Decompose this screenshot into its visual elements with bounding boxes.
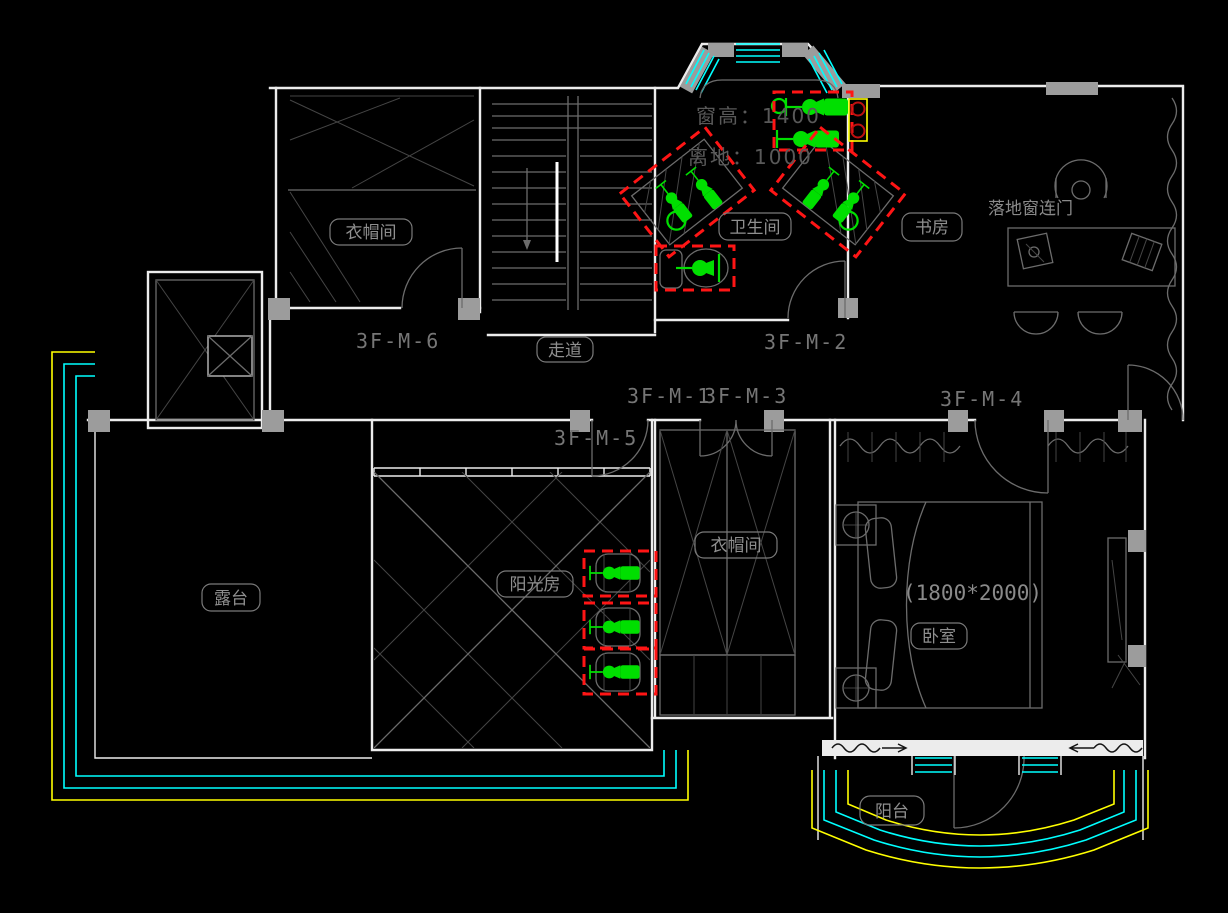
wardrobe-hatch-upper (288, 96, 476, 302)
label-sunroom: 阳光房 (497, 571, 573, 597)
elevator (156, 280, 254, 420)
label-bathroom: 卫生间 (719, 213, 791, 240)
label-text: 衣帽间 (346, 223, 397, 243)
faucet-lower-1[interactable] (590, 566, 640, 580)
door-tag-m2: 3F-M-2 (764, 330, 848, 354)
label-terrace: 露台 (202, 584, 260, 611)
door-tag-m6: 3F-M-6 (356, 329, 440, 353)
door-tag-m4: 3F-M-4 (940, 387, 1024, 411)
sill-height-annotation: 离地：1000 (688, 145, 813, 169)
label-corridor: 走道 (537, 337, 593, 362)
label-text: 卧室 (922, 627, 956, 647)
label-cloakroom-upper: 衣帽间 (330, 219, 412, 245)
label-text: 衣帽间 (711, 536, 762, 556)
floor-window-annotation: 落地窗连门 (988, 199, 1073, 219)
label-text: 走道 (548, 341, 582, 361)
floor-plan-canvas: 窗高：1400 离地：1000 落地窗连门 (1800*2000) 衣帽间 卫生… (0, 0, 1228, 913)
label-text: 阳光房 (510, 575, 561, 595)
bedroom-furniture (836, 432, 1140, 708)
door-tag-m3: 3F-M-3 (704, 384, 788, 408)
bed-size-annotation: (1800*2000) (903, 581, 1042, 605)
annotations: 窗高：1400 离地：1000 落地窗连门 (1800*2000) (688, 104, 1073, 605)
label-bedroom: 卧室 (911, 623, 967, 649)
sunroom-glazing (374, 472, 650, 748)
door-tag-m5: 3F-M-5 (554, 426, 638, 450)
label-text: 露台 (214, 589, 248, 609)
label-balcony: 阳台 (860, 796, 924, 825)
door-tag-m1: 3F-M-1 (627, 384, 711, 408)
balcony-structure (812, 744, 1148, 868)
window-height-annotation: 窗高：1400 (696, 104, 821, 128)
study-furniture (1008, 98, 1177, 410)
label-text: 卫生间 (730, 218, 781, 238)
label-study: 书房 (902, 213, 962, 241)
marker-yellow-box[interactable] (849, 99, 867, 141)
label-text: 阳台 (875, 802, 909, 822)
wardrobe-lower (660, 430, 795, 715)
door-tags: 3F-M-6 3F-M-2 3F-M-1 3F-M-3 3F-M-5 3F-M-… (356, 329, 1024, 450)
faucet-lower-3[interactable] (590, 665, 640, 679)
faucet-lower-2[interactable] (590, 620, 640, 634)
label-text: 书房 (915, 218, 949, 238)
